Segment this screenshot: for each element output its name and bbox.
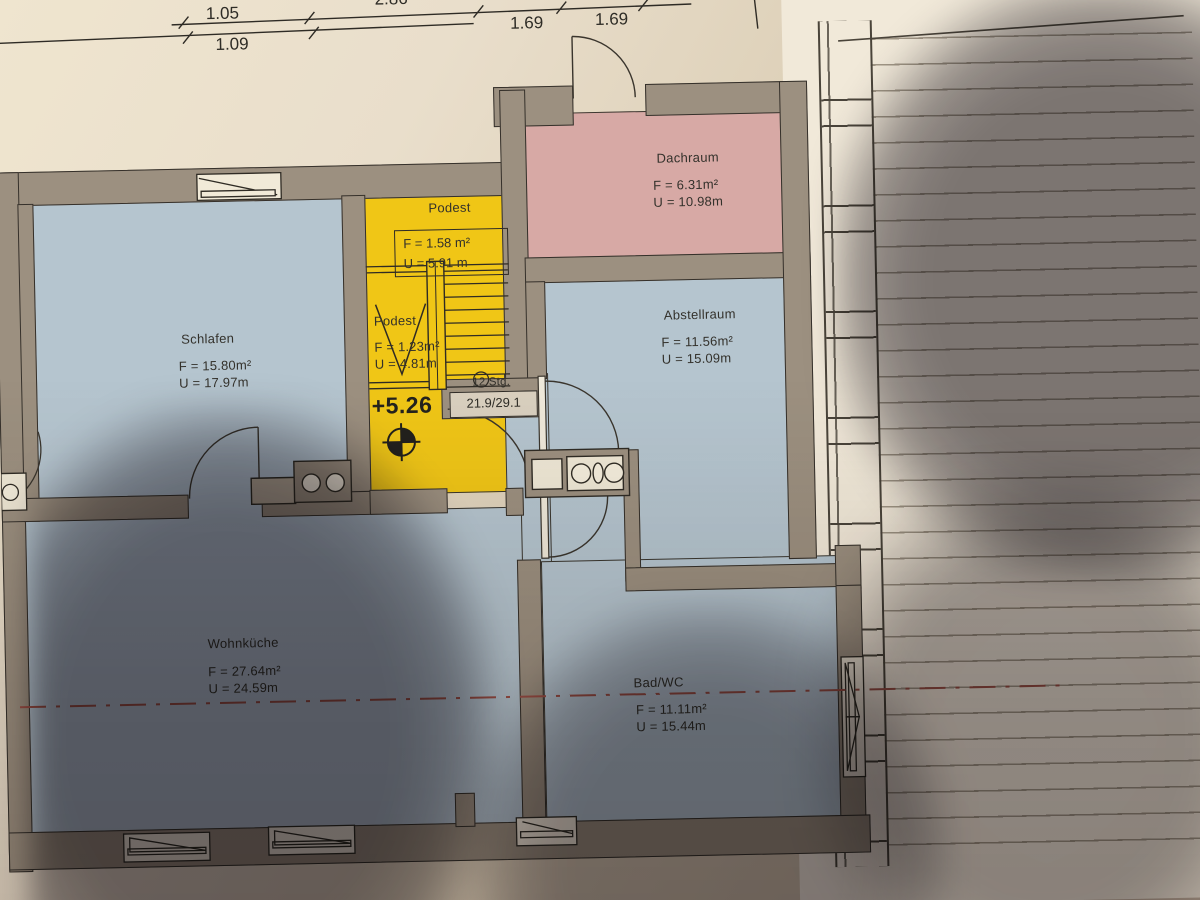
stairs-ratio: 21.9/29.1 [449,390,538,418]
door-schlafen [188,427,259,498]
room-perimeter: U = 24.59m [208,679,278,699]
wc-fixture-left [1,473,27,511]
window-bottom-3 [516,817,577,846]
dim-1-05: 1.05 [187,3,257,24]
room-perimeter: U = 5.91 m [403,252,499,274]
dim-1-69-b: 1.69 [576,9,646,30]
stairs-count: 12 Stg. [451,373,531,391]
window-top [197,173,282,201]
room-label: Podest [392,198,506,219]
window-bottom-1 [124,832,211,862]
room-label: Dachraum [656,148,719,167]
room-label: Podest [374,312,417,331]
room-label: Abstellraum [664,305,736,325]
room-area: F = 1.58 m² [403,232,499,254]
door-stair-exit [448,408,530,490]
podest-upper-values: F = 1.58 m² U = 5.91 m [394,228,509,277]
room-perimeter: U = 4.81m [375,354,438,373]
room-perimeter: U = 10.98m [653,192,723,212]
room-perimeter: U = 15.44m [636,717,706,737]
room-label: Wohnküche [207,634,278,654]
window-bottom-2 [268,825,355,855]
roof-outline [838,16,1184,41]
floorplan-photo: 1.05 2.86 1.69 1.69 1.09 Schlafen F = 15… [0,0,1200,900]
floorplan-drawing: 1.05 2.86 1.69 1.69 1.09 Schlafen F = 15… [0,0,1200,900]
window-bad-right [841,657,866,777]
room-label: Schlafen [181,330,234,349]
plan-linework [0,0,1200,900]
dim-1-09: 1.09 [197,34,267,55]
dim-1-69-a: 1.69 [491,13,561,34]
room-perimeter: U = 17.97m [179,373,249,393]
level-marker: +5.26 [371,392,432,420]
vanity-unit [525,448,630,497]
room-label: Bad/WC [633,673,684,692]
room-perimeter: U = 15.09m [662,349,732,369]
shaft-two-circles [251,460,352,504]
door-top-entry [572,35,635,98]
level-crosshair-icon [382,423,421,462]
